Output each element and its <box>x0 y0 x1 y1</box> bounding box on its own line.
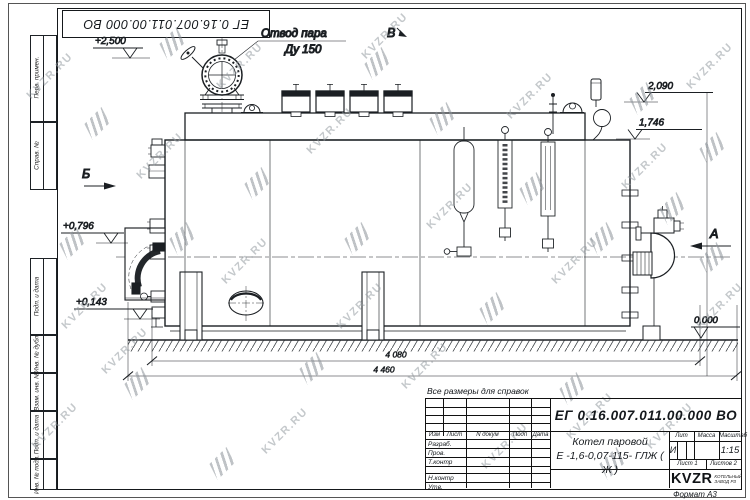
tb-line <box>426 407 550 408</box>
tb-sheet: Лист 1 <box>669 461 706 467</box>
gauge-glass-1 <box>498 127 512 242</box>
level-0000: 0,000 <box>694 315 718 326</box>
water-column-device <box>444 127 474 256</box>
dim-4460: 4 460 <box>373 365 395 375</box>
tb-line <box>426 415 550 416</box>
reference-note: Все размеры для справок <box>427 386 529 396</box>
level-1746: 1,746 <box>639 118 664 129</box>
tb-col-data: Дата <box>531 432 550 438</box>
steam-valve <box>179 38 244 113</box>
pressure-gauge-siphon <box>591 79 611 140</box>
tb-line <box>426 466 550 467</box>
tb-line <box>677 441 678 459</box>
kvzr-logo: KVZR КОТЕЛЬНЫЙ ЗАВОД РЗ <box>670 469 741 488</box>
callout-line1: Отвод пара <box>261 28 327 40</box>
tb-scale-label: Масштаб <box>719 433 741 439</box>
tb-line <box>531 399 532 488</box>
callout-line2: Ду 150 <box>283 44 322 56</box>
lifting-lug-left <box>241 105 263 113</box>
tb-col-ndok: N докум <box>466 432 509 438</box>
top-valve-boxes <box>282 84 412 117</box>
support-saddles <box>180 272 384 340</box>
view-a-label: А <box>709 227 718 241</box>
ground-line <box>128 340 738 352</box>
manhole <box>228 286 264 321</box>
kvzr-logo-text: KVZR <box>671 471 712 487</box>
front-smokebox <box>125 228 165 300</box>
level-2500: +2,500 <box>95 36 126 47</box>
tb-product-name: Котел паровой Е -1,6-0,07-115- ГЛЖ ( Ж ) <box>553 435 667 477</box>
tb-row-tkontr: Т.контр <box>426 459 468 466</box>
tb-row-nkontr: Н.контр <box>426 475 468 482</box>
tb-line <box>686 441 687 459</box>
tb-row-prov: Пров. <box>426 450 468 457</box>
engineering-drawing-page: { "watermark": { "text": "KVZR.RU" }, "f… <box>0 0 750 500</box>
tb-col-list: Лист <box>443 432 466 438</box>
tb-row-razrab: Разраб. <box>426 441 468 448</box>
tb-lit-value: И <box>669 445 677 455</box>
tb-lit-label: Лит <box>669 433 694 439</box>
lifting-lug-right <box>560 103 584 113</box>
tb-line <box>509 399 510 488</box>
tb-product-line1: Котел паровой <box>553 435 667 449</box>
tb-mass-label: Масса <box>694 433 719 439</box>
level-0143: +0,143 <box>76 297 107 308</box>
tb-col-podp: Подп <box>509 432 531 438</box>
view-v-label: В <box>387 26 395 40</box>
dim-4080: 4 080 <box>385 350 407 360</box>
tb-sheets: Листов 2 <box>706 461 741 467</box>
tb-designation: ЕГ 0.16.007.011.00.000 ВО <box>551 401 741 429</box>
boiler-shell <box>116 113 732 331</box>
level-0796: +0,796 <box>63 221 94 232</box>
view-b-label: Б <box>82 167 90 181</box>
tb-line <box>669 441 741 442</box>
level-2090: 2,090 <box>647 81 673 92</box>
steam-callout: Отвод пара Ду 150 <box>234 28 346 60</box>
format-label: Формат А3 <box>640 490 750 499</box>
tb-line <box>426 423 550 424</box>
tb-product-line2: Е -1,6-0,07-115- ГЛЖ ( Ж ) <box>553 449 667 477</box>
tb-col-izm: Изм <box>426 432 443 438</box>
kvzr-logo-sub2: ЗАВОД РЗ <box>714 479 742 484</box>
tb-row-utv: Утв. <box>426 484 468 491</box>
tb-line <box>669 459 741 460</box>
gauge-glass-2 <box>541 129 555 253</box>
burner-pump-unit <box>633 206 684 340</box>
tb-scale-value: 1:15 <box>719 445 741 456</box>
title-block: Изм Лист N докум Подп Дата Разраб. Пров.… <box>425 398 742 490</box>
